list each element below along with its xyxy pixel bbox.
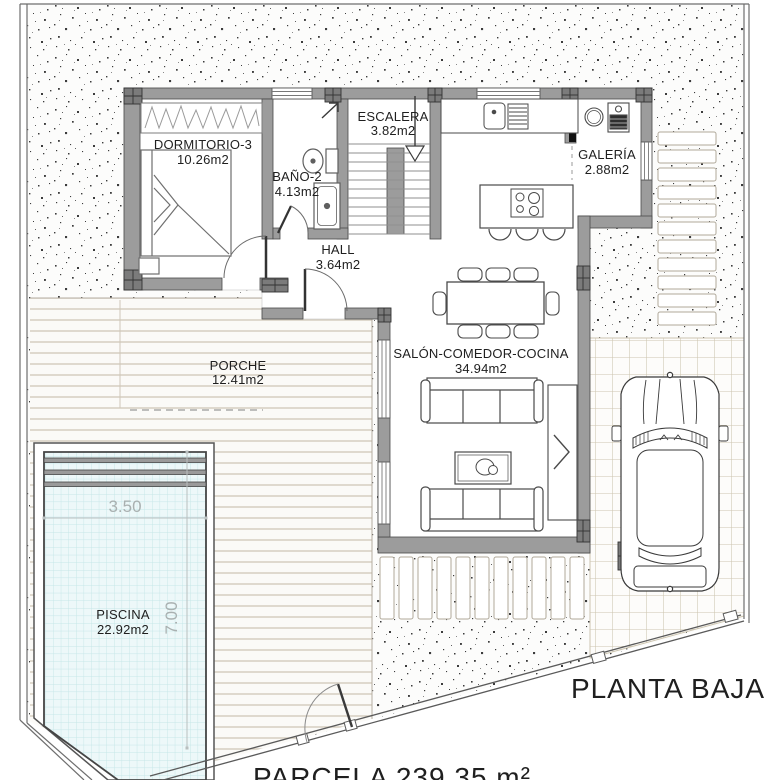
label-galeria-area: 2.88m2	[585, 162, 630, 177]
galeria-window	[641, 142, 652, 180]
label-hall-area: 3.64m2	[316, 257, 361, 272]
salon-window-upper	[378, 340, 390, 418]
car	[612, 372, 728, 591]
sofa-top	[421, 378, 543, 423]
label-porche-name: PORCHE	[210, 358, 267, 373]
plan-title: PLANTA BAJA	[571, 673, 765, 704]
label-salon-name: SALÓN-COMEDOR-COCINA	[393, 346, 568, 361]
trunk	[634, 566, 706, 587]
floor-plan: 3.50 7.00	[0, 0, 780, 780]
label-dormitorio-area: 10.26m2	[177, 152, 229, 167]
pool-width-label: 3.50	[108, 497, 141, 516]
label-hall-name: HALL	[321, 242, 354, 257]
label-bano-area: 4.13m2	[275, 184, 320, 199]
pillar	[378, 308, 391, 322]
label-piscina-area: 22.92m2	[97, 622, 149, 637]
sofa-bottom	[421, 487, 543, 531]
pillar	[325, 88, 341, 102]
wardrobe	[141, 103, 262, 133]
pool-steps	[44, 458, 206, 487]
side-mirror-right	[719, 426, 728, 441]
pillar	[428, 88, 442, 102]
dining-table	[447, 282, 544, 324]
label-piscina-name: PISCINA	[96, 607, 150, 622]
pillar	[262, 279, 288, 292]
car-roof	[637, 450, 703, 546]
label-dormitorio-name: DORMITORIO-3	[154, 137, 252, 152]
washing-machine-icon	[608, 103, 629, 132]
coffee-table	[455, 452, 511, 484]
label-galeria-name: GALERÍA	[578, 147, 636, 162]
label-salon-area: 34.94m2	[455, 361, 507, 376]
parcel-label: PARCELA 239,35 m²	[253, 762, 531, 780]
bathroom-window	[272, 88, 312, 99]
label-bano-name: BAÑO-2	[272, 169, 322, 184]
bed	[139, 150, 231, 274]
pillar	[636, 88, 652, 102]
pool-length-label: 7.00	[162, 601, 181, 634]
pillar	[124, 88, 142, 104]
salon-window-lower	[378, 462, 390, 524]
kitchen-window	[477, 88, 540, 99]
label-porche-area: 12.41m2	[212, 372, 264, 387]
pillar	[577, 520, 590, 542]
pillar	[577, 266, 590, 290]
tv-unit	[548, 385, 577, 520]
walk-planks	[380, 557, 584, 619]
label-escalera-name: ESCALERA	[358, 109, 429, 124]
side-mirror-left	[612, 426, 621, 441]
stepping-stones	[658, 132, 716, 325]
kitchen-island	[480, 185, 573, 228]
label-escalera-area: 3.82m2	[371, 123, 416, 138]
hob	[511, 189, 543, 217]
